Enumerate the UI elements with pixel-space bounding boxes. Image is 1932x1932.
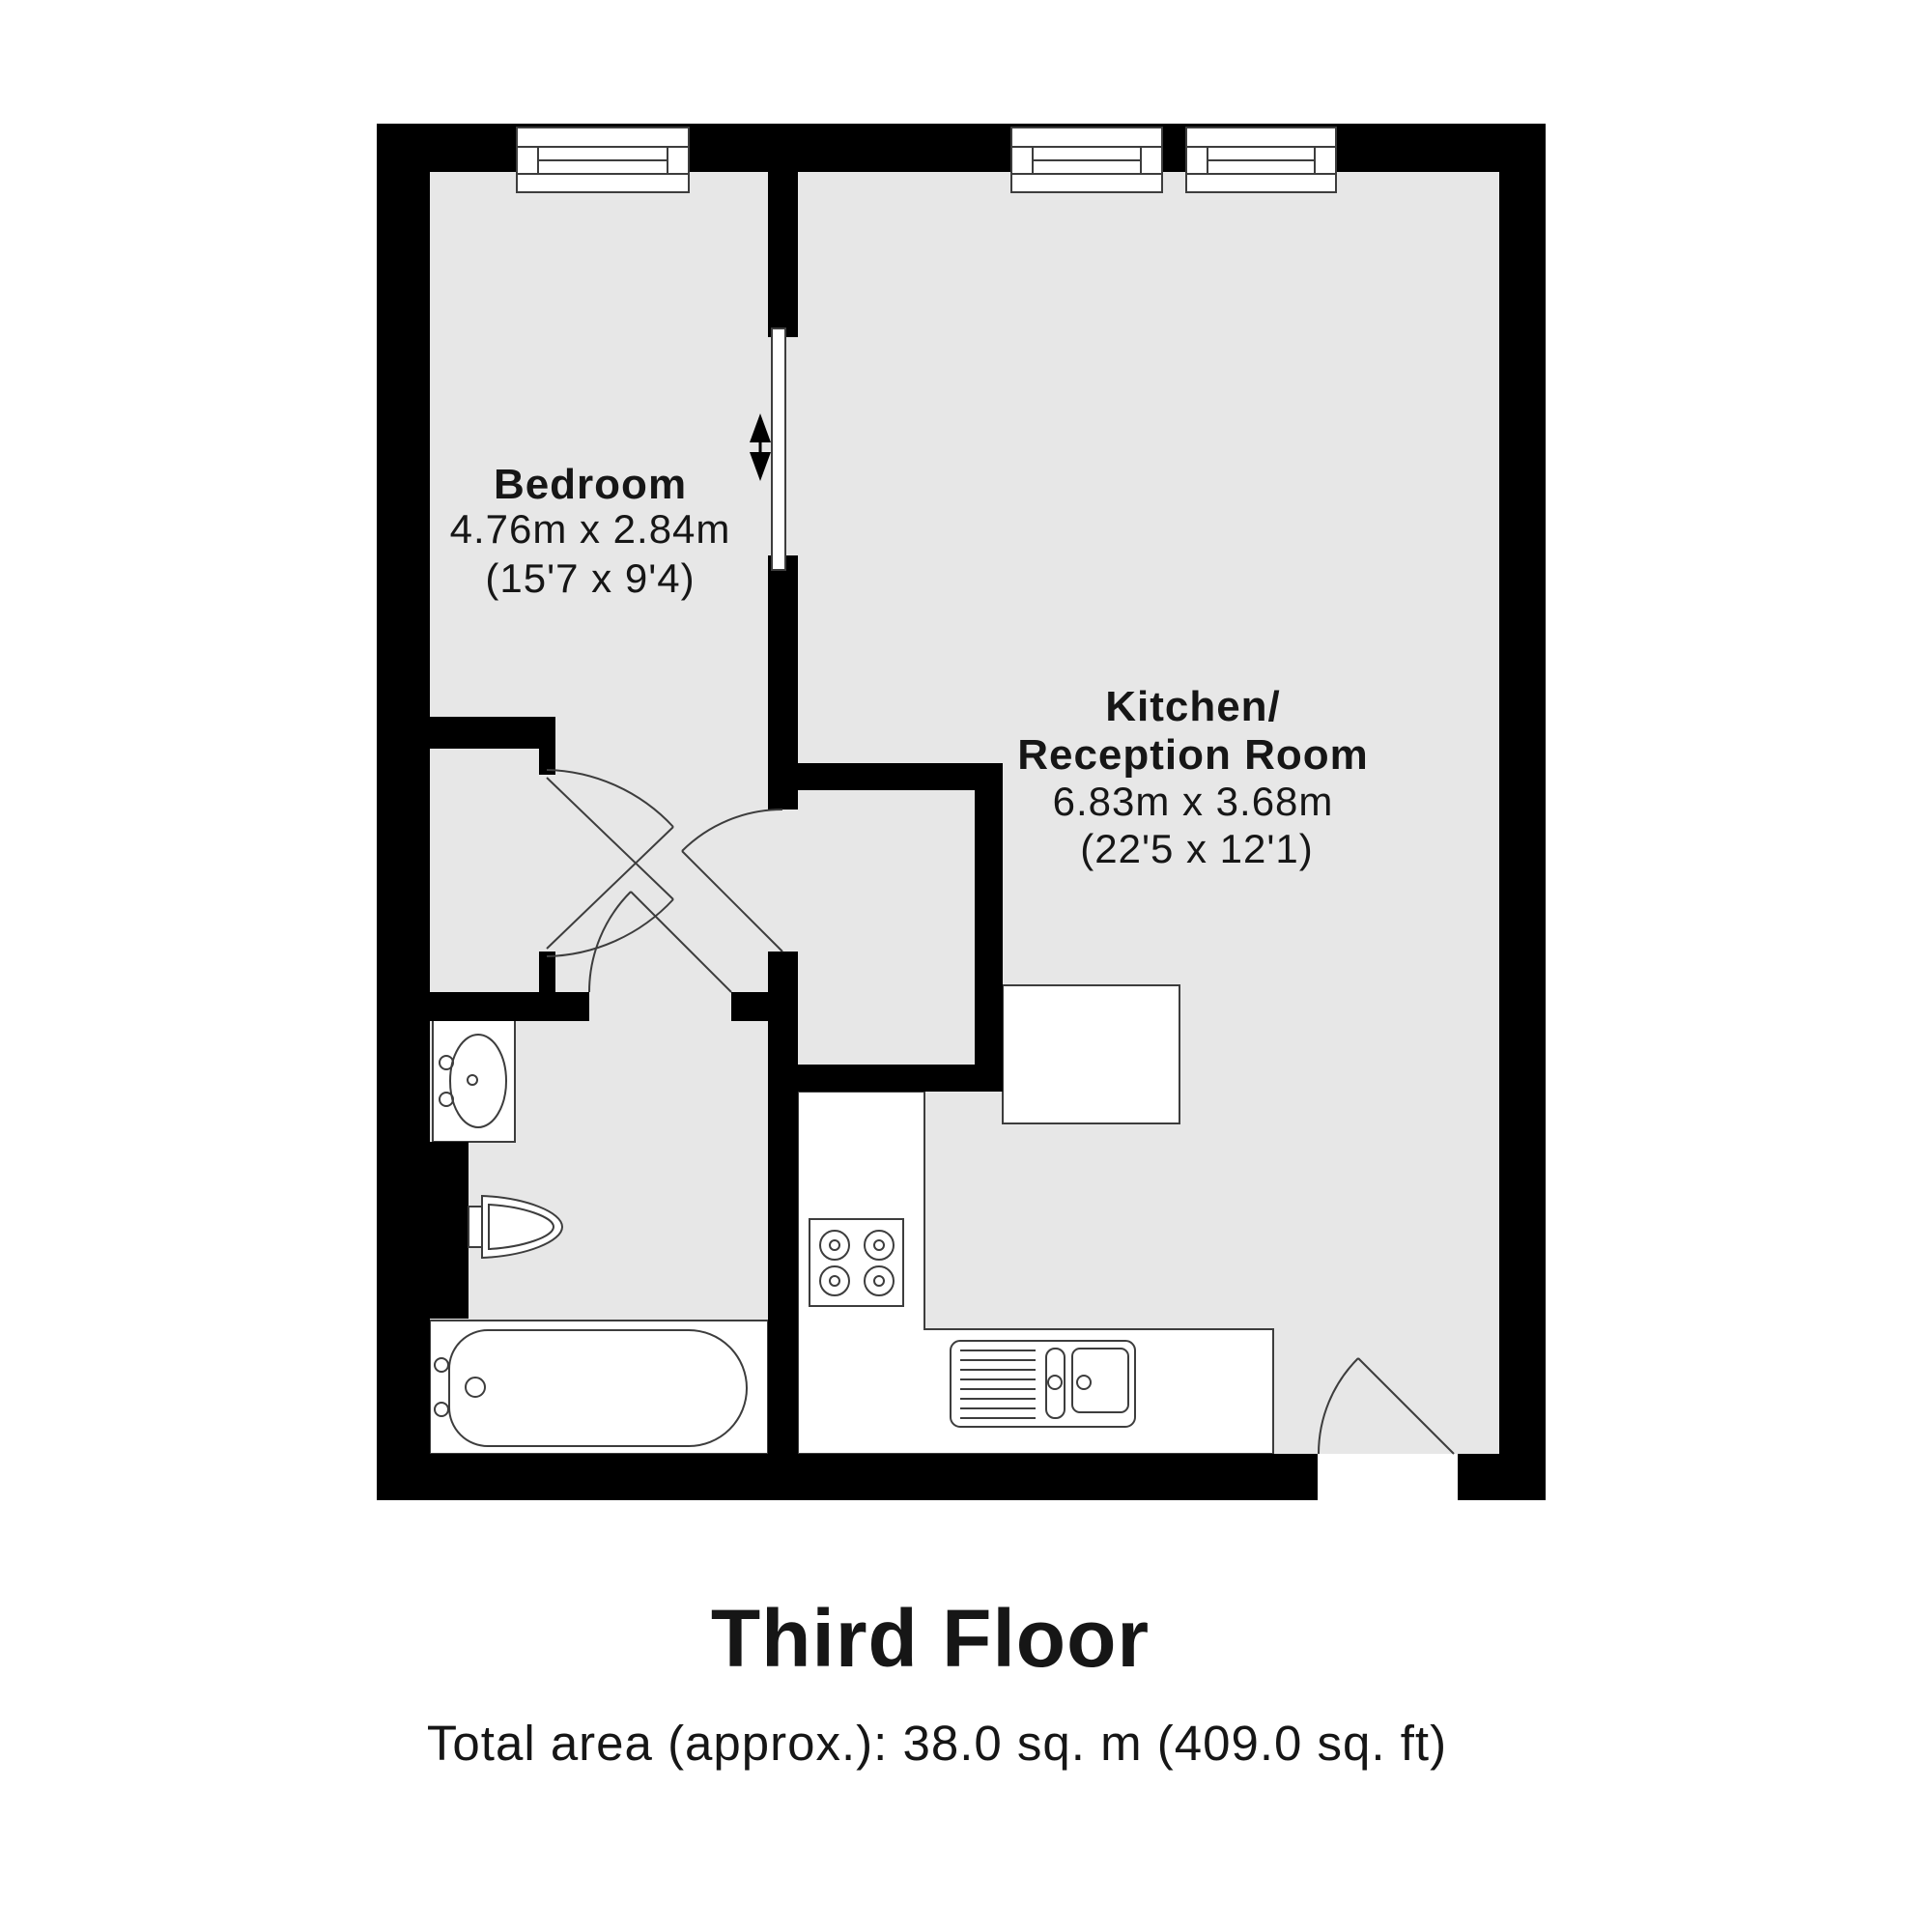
bedroom-dim-imperial: (15'7 x 9'4)	[485, 555, 695, 601]
wall-divider-middle	[768, 555, 798, 810]
bedroom-dim-metric: 4.76m x 2.84m	[450, 506, 731, 552]
kitchen-dim-metric: 6.83m x 3.68m	[1053, 779, 1334, 824]
wall-plumbing-block	[377, 1142, 469, 1319]
total-area-text: Total area (approx.): 38.0 sq. m (409.0 …	[427, 1716, 1447, 1771]
wall-wardrobe-jamb-bottom	[539, 952, 555, 992]
floorplan-page: Bedroom 4.76m x 2.84m (15'7 x 9'4) Kitch…	[0, 0, 1932, 1932]
kitchen-name-line2: Reception Room	[1017, 731, 1369, 779]
wall-divider-lower	[768, 952, 798, 1454]
wall-bottom-left	[377, 1454, 1318, 1500]
wall-storage-top	[798, 763, 1003, 790]
window-icon	[1011, 128, 1162, 192]
kitchen-name-line1: Kitchen/	[1105, 683, 1281, 730]
window-icon	[517, 128, 689, 192]
wall-storage-bottom	[798, 1065, 1003, 1092]
wall-bedroom-south	[430, 717, 555, 749]
kitchen-counter-upper	[1003, 985, 1179, 1123]
kitchen-sink-icon	[951, 1341, 1135, 1427]
window-icon	[1186, 128, 1336, 192]
wall-divider-upper	[768, 172, 798, 337]
floor-area	[430, 172, 1499, 1454]
wall-bathroom-north-right	[731, 992, 768, 1021]
floor-plan: Bedroom 4.76m x 2.84m (15'7 x 9'4) Kitch…	[0, 0, 1932, 1932]
kitchen-dim-imperial: (22'5 x 12'1)	[1080, 826, 1314, 871]
wall-bottom-right	[1458, 1454, 1546, 1500]
bathtub-icon	[435, 1330, 747, 1446]
page-title: Third Floor	[711, 1593, 1150, 1684]
wall-right	[1499, 124, 1546, 1500]
wall-storage-right	[975, 763, 1003, 1092]
hob-icon	[810, 1219, 903, 1306]
wall-bathroom-north-left	[430, 992, 589, 1021]
bedroom-name: Bedroom	[494, 461, 687, 508]
